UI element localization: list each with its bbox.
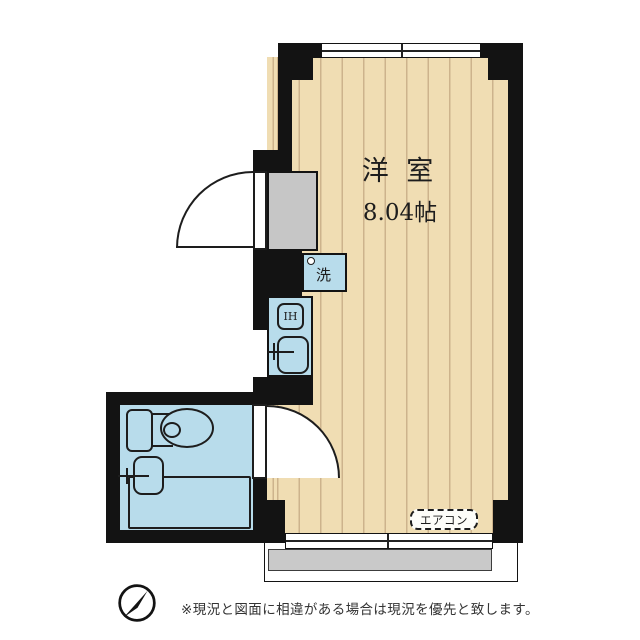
aircon-box: エアコン — [410, 509, 478, 530]
balcony-deck — [268, 549, 492, 571]
entrance-door-swing — [176, 171, 253, 248]
wall-segment-left — [278, 58, 292, 150]
room-size-label: 8.04帖 — [330, 193, 470, 227]
wall-segment-right — [508, 58, 523, 543]
wall-corner-bottom-left — [267, 500, 285, 543]
washbasin-faucet-tick — [126, 468, 128, 484]
kitchen-sink — [277, 336, 309, 374]
washer-tap-icon — [307, 257, 315, 265]
room-name-label: 洋 室 — [330, 149, 470, 188]
window-top-divider — [401, 44, 403, 57]
toilet-tank — [126, 409, 153, 452]
washer-space: 洗 — [302, 253, 347, 292]
wall-beside-kitchen — [253, 296, 268, 330]
window-bottom-midline — [286, 540, 492, 542]
toilet-bowl-inner — [163, 422, 181, 438]
wall-above-entry — [253, 150, 292, 172]
compass-icon — [116, 582, 158, 624]
kitchen-faucet-icon — [268, 351, 294, 353]
ih-stove: IH — [277, 303, 304, 330]
disclaimer-text: ※現況と図面に相違がある場合は現況を優先と致します。 — [181, 598, 539, 618]
kitchen-faucet-tick — [273, 343, 275, 360]
entrance-door-leaf — [253, 171, 267, 250]
wall-corner-bottom-right — [493, 500, 523, 543]
bathroom-door-leaf — [252, 404, 267, 479]
washbasin-faucet-icon — [118, 475, 149, 477]
washer-label: 洗 — [316, 264, 331, 285]
floor-plan-canvas: 洗 IH 洋 室 8.04帖 エアコン ※現況と図面に相違がある場合は現況を優先… — [0, 0, 640, 640]
window-bottom-divider — [387, 534, 389, 548]
wall-beside-washer — [253, 248, 302, 296]
entry-genkan-area — [267, 171, 318, 251]
